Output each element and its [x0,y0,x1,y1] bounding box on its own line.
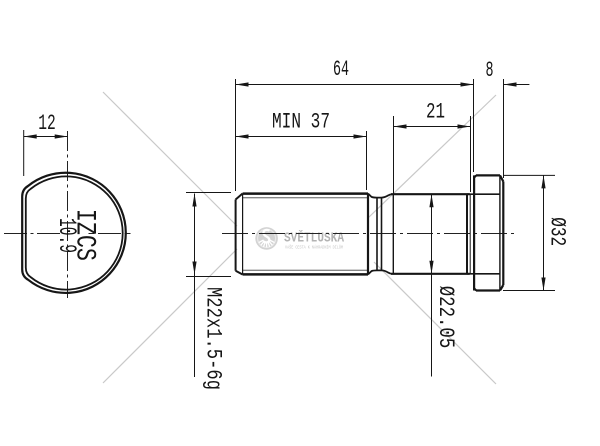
svg-text:M22x1.5-6g: M22x1.5-6g [200,287,225,390]
svg-text:VAŠE CESTA K NÁHRADNÍM DÍLŮM: VAŠE CESTA K NÁHRADNÍM DÍLŮM [285,244,343,251]
svg-text:Ø22.05: Ø22.05 [433,286,458,349]
svg-text:Ø32: Ø32 [545,217,570,246]
svg-text:SVĚTLUSKA: SVĚTLUSKA [284,231,345,247]
svg-text:64: 64 [333,57,349,82]
svg-text:21: 21 [426,100,445,125]
svg-text:8: 8 [486,58,494,83]
svg-text:MIN 37: MIN 37 [272,110,330,135]
svg-text:10.9: 10.9 [52,218,81,253]
svg-text:12: 12 [38,111,56,136]
